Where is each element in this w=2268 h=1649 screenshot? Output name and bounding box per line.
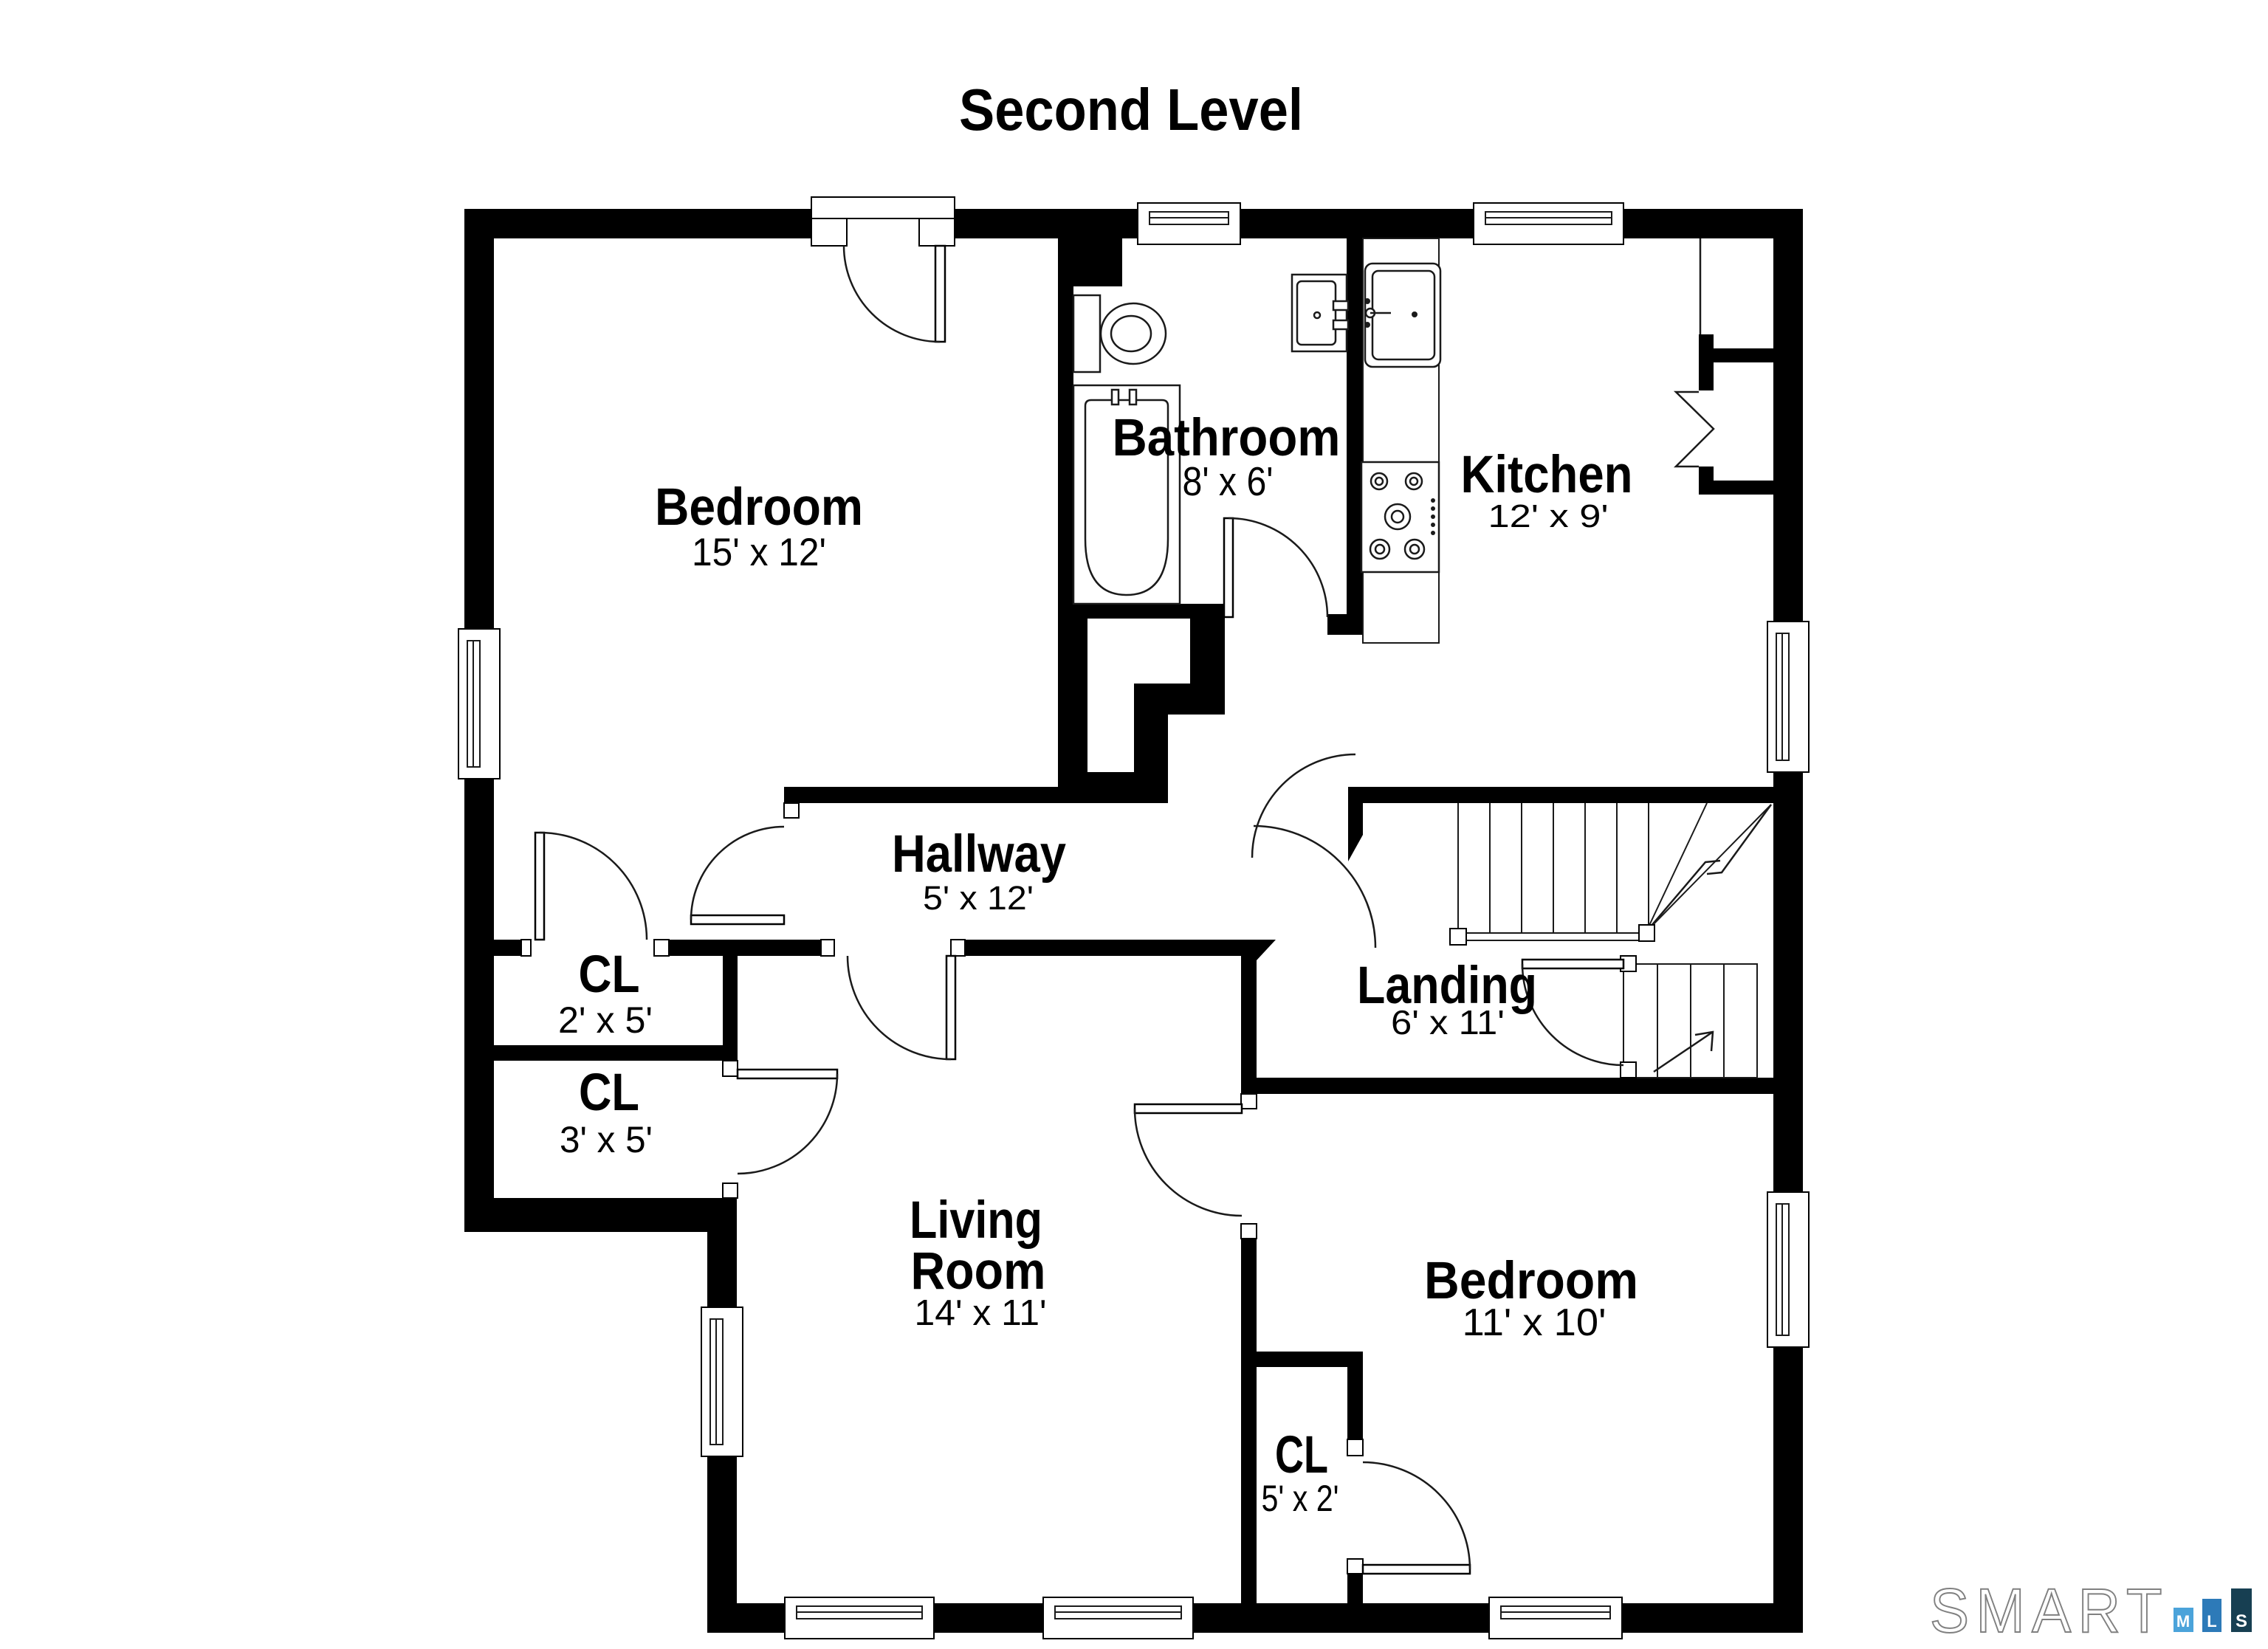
svg-text:M: M [2176,1612,2190,1631]
svg-text:Hallway: Hallway [892,825,1066,884]
svg-text:Second Level: Second Level [959,77,1303,142]
svg-text:5' x 2': 5' x 2' [1262,1478,1339,1519]
svg-text:CL: CL [579,946,640,1004]
svg-text:12' x 9': 12' x 9' [1488,498,1609,534]
svg-text:S: S [2236,1611,2247,1631]
svg-text:6' x 11': 6' x 11' [1391,1003,1505,1042]
svg-text:2' x 5': 2' x 5' [558,999,653,1041]
svg-text:L: L [2207,1612,2216,1631]
svg-text:CL: CL [1275,1426,1328,1484]
svg-text:3' x 5': 3' x 5' [560,1119,653,1160]
svg-text:SMART: SMART [1930,1576,2169,1645]
svg-text:CL: CL [579,1064,639,1122]
svg-text:Living: Living [910,1191,1042,1250]
svg-text:8' x 6': 8' x 6' [1183,458,1274,504]
svg-text:15' x 12': 15' x 12' [692,531,826,574]
svg-text:Kitchen: Kitchen [1461,446,1633,504]
svg-text:Bedroom: Bedroom [655,478,863,537]
svg-text:11' x 10': 11' x 10' [1463,1301,1606,1344]
svg-text:5' x 12': 5' x 12' [923,879,1034,917]
svg-text:Room: Room [911,1242,1046,1301]
svg-text:14' x 11': 14' x 11' [915,1293,1047,1333]
